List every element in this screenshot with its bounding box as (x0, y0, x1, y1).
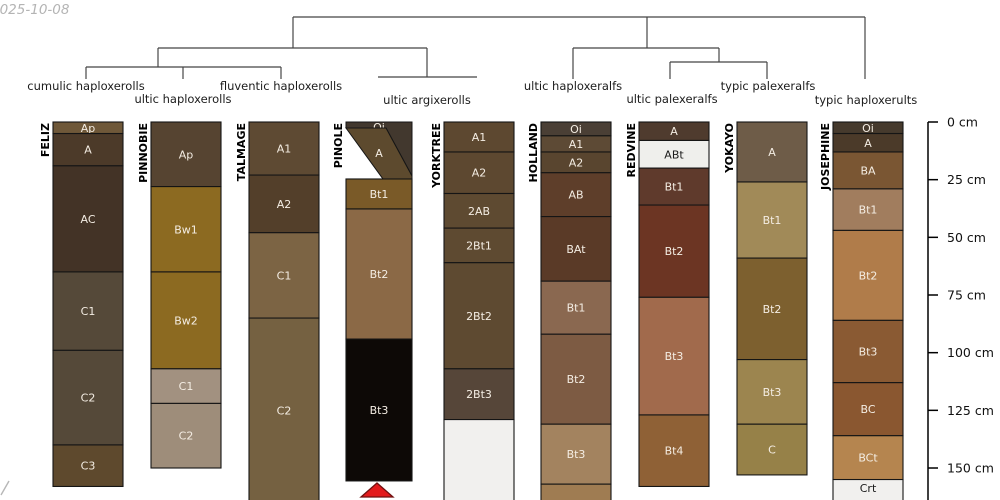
depth-tick-label: 100 cm (947, 345, 994, 360)
horizon-label: C1 (277, 269, 292, 282)
horizon-label: ABt (664, 148, 684, 161)
horizon-label: AB (568, 189, 583, 202)
profile-name: YORKTREE (430, 123, 443, 189)
taxon-label: ultic haploxeralfs (524, 79, 622, 93)
dendrogram: cumulic haploxerollsultic haploxerollsfl… (27, 17, 917, 107)
taxon-label: fluventic haploxerolls (220, 79, 342, 93)
horizon-label: Ap (81, 122, 96, 135)
horizon-label: Bt1 (370, 188, 389, 201)
horizon-label: A1 (569, 138, 584, 151)
taxon-label: typic palexeralfs (721, 79, 816, 93)
plot-svg: cumulic haploxerollsultic haploxerollsfl… (0, 0, 1000, 500)
profile-name: PINNOBIE (137, 123, 150, 183)
horizon-label: Oi (570, 123, 582, 136)
horizon-label: Bt4 (665, 445, 684, 458)
profile-pinole: PINOLEOiABt1Bt2Bt3 (332, 121, 412, 497)
horizon-label: A2 (472, 167, 487, 180)
depth-tick-label: 25 cm (947, 172, 986, 187)
profile-name: PINOLE (332, 123, 345, 168)
depth-tick-label: 0 cm (947, 115, 978, 130)
profile-name: REDVINE (625, 123, 638, 177)
profile-redvine: REDVINEAABtBt1Bt2Bt3Bt4 (625, 122, 709, 486)
horizon-label: BC (860, 403, 875, 416)
horizon-label: 2Bt2 (466, 310, 492, 323)
horizon-label: Ap (179, 148, 194, 161)
depth-tick-label: 50 cm (947, 230, 986, 245)
horizon-label: A1 (277, 143, 292, 156)
horizon-label: A (670, 125, 678, 138)
horizon-label: BCt (858, 452, 878, 465)
horizon-label: C2 (277, 404, 292, 417)
horizon-label: Bw2 (174, 314, 198, 327)
horizon-label: Bt1 (763, 214, 782, 227)
horizon-label: Bt3 (370, 404, 389, 417)
horizon-label: Crt (860, 482, 877, 495)
horizon-label: Bw1 (174, 223, 198, 236)
horizon-rect (444, 420, 514, 500)
profile-name: JOSEPHINE (819, 123, 832, 191)
horizon-label: A2 (569, 156, 584, 169)
profile-feliz: FELIZApAACC1C2C3 (39, 122, 123, 487)
taxon-label: typic haploxerults (815, 93, 918, 107)
profile-holland: HOLLANDOiA1A2ABBAtBt1Bt2Bt3 (527, 122, 611, 500)
taxon-label: ultic palexeralfs (626, 92, 717, 106)
horizon-label: C2 (81, 392, 96, 405)
taxon-label: ultic haploxerolls (134, 92, 231, 106)
taxon-label: ultic argixerolls (383, 93, 471, 107)
horizon-label: Bt2 (370, 268, 389, 281)
horizon-label: C1 (179, 380, 194, 393)
horizon-label: Bt3 (567, 448, 586, 461)
profile-name: FELIZ (39, 123, 52, 157)
depth-tick-label: 75 cm (947, 288, 986, 303)
horizon-label: Bt2 (567, 373, 586, 386)
horizon-label: C (768, 444, 776, 457)
profile-name: HOLLAND (527, 123, 540, 182)
horizon-label: Bt2 (665, 245, 684, 258)
horizon-label: Bt1 (859, 204, 878, 217)
horizon-label: A (768, 146, 776, 159)
horizon-label: C1 (81, 305, 96, 318)
profile-talmage: TALMAGEA1A2C1C2 (235, 122, 319, 500)
horizon-label: A (375, 147, 383, 160)
horizon-label: Bt1 (665, 181, 684, 194)
horizon-label: Bt3 (859, 346, 878, 359)
horizon-label: Bt2 (763, 303, 782, 316)
horizon-label: A (84, 144, 92, 157)
horizon-label: Oi (862, 122, 874, 135)
continuation-marker (361, 483, 393, 497)
horizon-label: A (864, 137, 872, 150)
horizon-label: Bt3 (665, 350, 684, 363)
horizon-label: 2Bt3 (466, 388, 492, 401)
profile-pinnobie: PINNOBIEApBw1Bw2C1C2 (137, 122, 221, 468)
horizon-label: AC (80, 213, 95, 226)
profile-yorktree: YORKTREEA1A22AB2Bt12Bt22Bt3 (430, 122, 514, 500)
profile-josephine: JOSEPHINEOiABABt1Bt2Bt3BCBCtCrt (819, 122, 903, 500)
horizon-label: Bt2 (859, 269, 878, 282)
horizon-label: C3 (81, 460, 96, 473)
horizon-label: 2AB (468, 205, 490, 218)
horizon-label: BA (860, 164, 876, 177)
depth-tick-label: 150 cm (947, 461, 994, 476)
clipped-caption-fragment (1, 481, 9, 495)
depth-tick-label: 125 cm (947, 403, 994, 418)
horizon-label: Bt1 (567, 302, 586, 315)
horizon-label: A2 (277, 198, 292, 211)
horizon-label: Bt3 (763, 386, 782, 399)
horizon-label: A1 (472, 131, 487, 144)
horizon-label: 2Bt1 (466, 239, 492, 252)
taxon-label: cumulic haploxerolls (27, 79, 144, 93)
profile-name: YOKAYO (723, 123, 736, 174)
horizon-label: BAt (566, 243, 586, 256)
horizon-rect (541, 484, 611, 500)
soil-profile-dendrogram-plot: 2025-10-08 cumulic haploxerollsultic hap… (0, 0, 1000, 500)
profile-yokayo: YOKAYOABt1Bt2Bt3C (723, 122, 807, 475)
depth-axis: 0 cm25 cm50 cm75 cm100 cm125 cm150 cm (928, 115, 994, 500)
horizon-label: C2 (179, 430, 194, 443)
profile-name: TALMAGE (235, 123, 248, 181)
